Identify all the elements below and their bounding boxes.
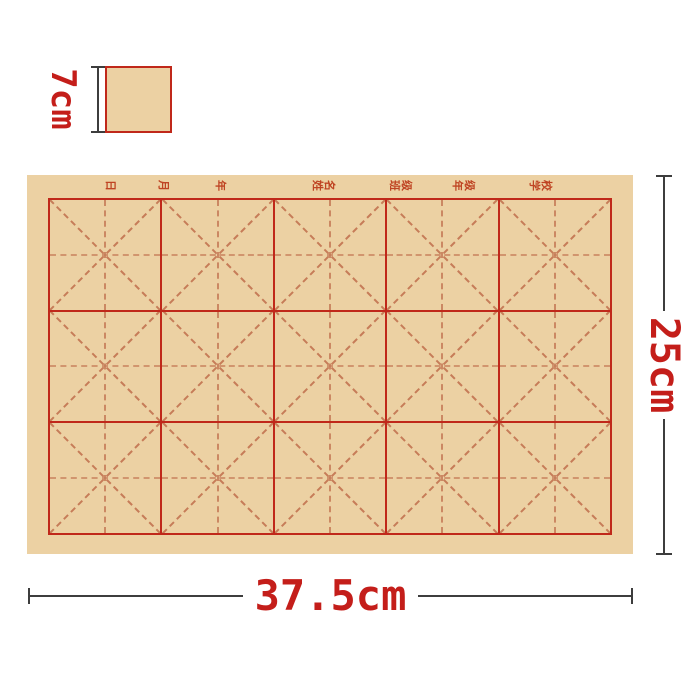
cell-horizontal-midline [500,254,610,256]
grid-cell [161,311,273,423]
grid-cell [274,311,386,423]
cell-horizontal-midline [50,254,160,256]
grid-cell [49,311,161,423]
height-dimension: 25cm [644,175,684,555]
paper-header-char: 年 [212,180,228,192]
paper-header-char: 级 [461,180,477,192]
cell-horizontal-midline [275,477,385,479]
cell-horizontal-midline [50,477,160,479]
paper-header-char: 名 [321,180,337,192]
paper-header-char: 级 [398,180,414,192]
cell-horizontal-midline [387,477,497,479]
grid-cell [161,199,273,311]
dimension-line-segment [418,595,631,597]
grid-cell [499,199,611,311]
grid-cell [386,199,498,311]
cell-horizontal-midline [275,254,385,256]
paper-header-label: 日 [104,178,116,194]
paper-header-char: 校 [538,180,554,192]
cell-horizontal-midline [50,365,160,367]
paper-header-label: 月 [157,178,169,194]
grid-cell [274,199,386,311]
grid-cell [386,422,498,534]
product-dimension-diagram: 7cm 日月年姓名班级年级学校 25cm 37.5cm [0,0,700,700]
dimension-tick [631,588,633,604]
width-dimension-label: 37.5cm [255,575,407,617]
height-dimension-label: 25cm [641,317,687,413]
paper-header-label: 学校 [528,178,552,194]
paper-header-label: 年 [214,178,226,194]
grid-cell [274,422,386,534]
cell-size-dimension-label: 7cm [43,68,83,129]
grid-cell [49,199,161,311]
cell-horizontal-midline [162,254,272,256]
cell-size-dimension-line [91,66,105,133]
paper-header-label: 姓名 [311,178,335,194]
cell-horizontal-midline [387,365,497,367]
cell-size-dimension-label-wrap: 7cm [38,64,88,134]
mi-zi-grid [48,198,612,535]
dimension-tick [91,131,105,133]
dimension-tick [656,553,672,555]
cell-horizontal-midline [162,477,272,479]
legend-grid-cell [105,66,172,133]
dimension-line-segment [663,419,665,553]
grid-cell [499,422,611,534]
grid-cell [161,422,273,534]
cell-horizontal-midline [275,365,385,367]
paper-header-label: 班级 [388,178,412,194]
dimension-line-segment [663,177,665,311]
cell-horizontal-midline [500,365,610,367]
grid-cell [49,422,161,534]
grid-cell [499,311,611,423]
paper-header-char: 月 [155,180,171,192]
dimension-line-segment [30,595,243,597]
dimension-line-segment [97,66,99,133]
cell-horizontal-midline [387,254,497,256]
paper-header-char: 日 [102,180,118,192]
width-dimension: 37.5cm [28,570,633,622]
grid-cell [386,311,498,423]
paper-header-label: 年级 [451,178,475,194]
height-dimension-label-wrap: 25cm [644,311,684,419]
cell-horizontal-midline [162,365,272,367]
cell-horizontal-midline [500,477,610,479]
